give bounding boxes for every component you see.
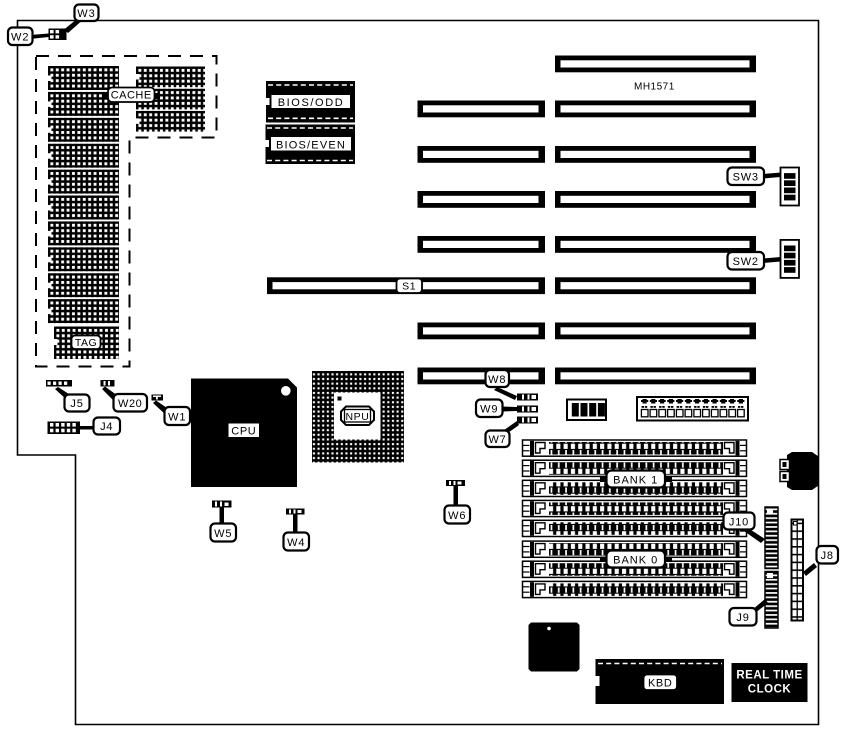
svg-text:W8: W8 <box>488 374 506 386</box>
svg-text:J4: J4 <box>100 421 113 433</box>
svg-text:W4: W4 <box>287 537 305 549</box>
svg-text:J10: J10 <box>729 516 749 528</box>
svg-text:NPU: NPU <box>346 411 370 423</box>
svg-text:J8: J8 <box>821 550 834 562</box>
svg-text:W7: W7 <box>488 434 506 446</box>
svg-text:BIOS/EVEN: BIOS/EVEN <box>276 139 346 151</box>
svg-text:CLOCK: CLOCK <box>748 684 792 696</box>
svg-text:BIOS/ODD: BIOS/ODD <box>278 97 345 109</box>
svg-text:J9: J9 <box>736 612 749 624</box>
svg-text:W9: W9 <box>480 404 498 416</box>
svg-text:SW3: SW3 <box>733 171 759 183</box>
svg-text:BANK 0: BANK 0 <box>613 554 658 566</box>
svg-text:SW2: SW2 <box>733 256 759 268</box>
svg-text:KBD: KBD <box>648 677 672 689</box>
svg-text:J5: J5 <box>70 398 83 410</box>
svg-text:TAG: TAG <box>75 337 97 349</box>
svg-text:W6: W6 <box>448 510 466 522</box>
svg-text:W2: W2 <box>11 31 30 43</box>
svg-text:W20: W20 <box>118 398 142 410</box>
svg-text:BANK 1: BANK 1 <box>613 474 658 486</box>
svg-text:S1: S1 <box>402 281 416 293</box>
svg-text:CPU: CPU <box>231 425 256 437</box>
svg-text:CACHE: CACHE <box>111 90 152 102</box>
svg-text:MH1571: MH1571 <box>634 82 675 93</box>
svg-text:REAL TIME: REAL TIME <box>736 670 802 682</box>
svg-text:W5: W5 <box>214 528 232 540</box>
svg-text:W3: W3 <box>77 8 96 20</box>
svg-text:W1: W1 <box>168 411 186 423</box>
